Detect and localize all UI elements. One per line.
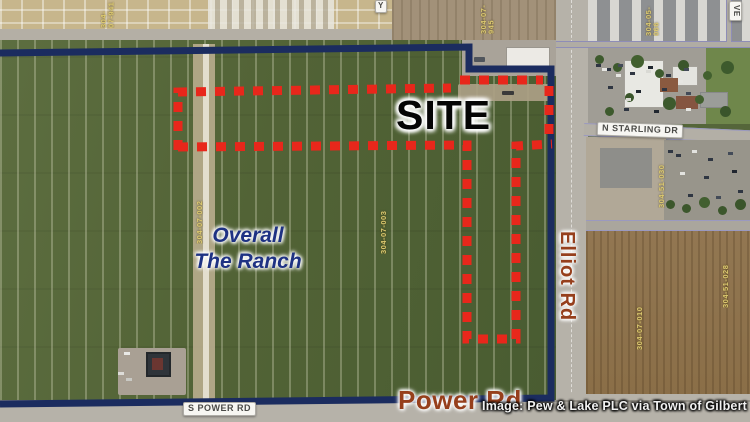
parcel-label: 304-07-010 [636, 296, 644, 350]
parcel-label: 304-51-028 [722, 248, 730, 308]
partial-street-sign-y: Y [375, 0, 387, 13]
site-label: SITE [396, 95, 491, 136]
parcel-label: 304-51-030 [658, 156, 666, 208]
image-credit: Image: Pew & Lake PLC via Town of Gilber… [482, 400, 747, 413]
aerial-site-map: SITE Overall The Ranch Power Rd Elliot R… [0, 0, 750, 422]
parcel-label: 304-05-066 [645, 2, 660, 36]
overall-ranch-label: Overall The Ranch [166, 223, 330, 276]
parcel-label: 304-07-941 [100, 0, 115, 28]
s-power-rd-street-sign: S POWER RD [183, 402, 256, 416]
n-starling-dr-street-sign: N STARLING DR [597, 121, 684, 138]
parcel-label: 304-07-945 [480, 0, 495, 34]
annotation-overlay [0, 0, 750, 422]
parcel-label: 304-07-003 [380, 192, 388, 254]
overall-ranch-line2: The Ranch [194, 250, 301, 273]
elliot-rd-label: Elliot Rd [557, 231, 577, 321]
overall-ranch-line1: Overall [212, 224, 283, 247]
partial-street-sign-ve: VE [729, 1, 742, 21]
parcel-label: 304-07-002 [196, 182, 204, 244]
